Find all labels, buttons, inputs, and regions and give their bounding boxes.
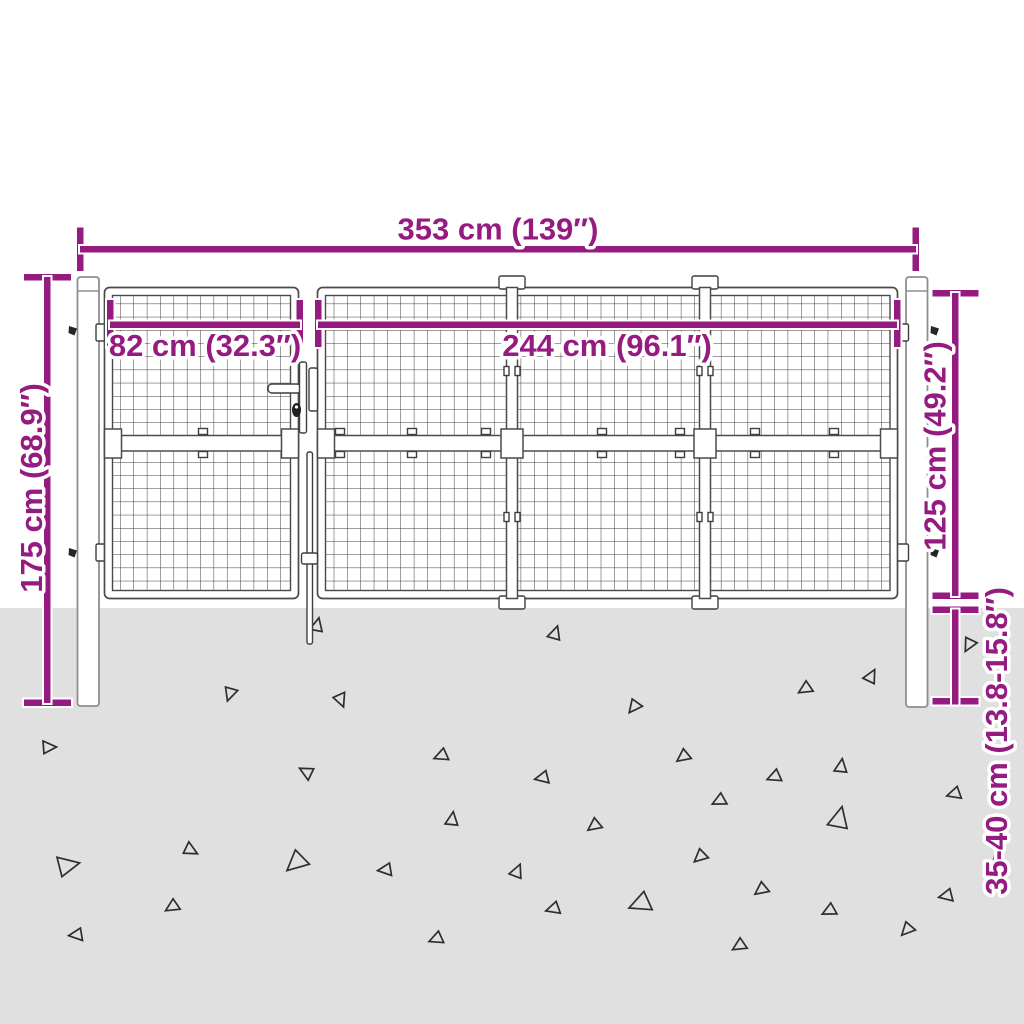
latch-plate <box>300 362 307 433</box>
dimension-total-width: 353 cm (139″) <box>77 212 919 272</box>
dim-line <box>952 293 959 596</box>
dim-label-side-gate-width: 82 cm (32.3″) <box>109 328 301 363</box>
hinge-pin-icon <box>931 326 940 336</box>
rail-clamp <box>105 429 122 458</box>
drop-rod <box>307 452 313 644</box>
lock-cylinder-icon <box>292 403 301 417</box>
dim-line <box>80 246 916 253</box>
gate-handle <box>268 384 301 393</box>
ground-soil <box>0 608 1024 1024</box>
rail-clamp <box>881 429 898 458</box>
dim-label-post-height: 175 cm (68.9″) <box>14 383 49 593</box>
gate-dimension-diagram: 353 cm (139″) 82 cm (32.3″) 244 cm (96.1… <box>0 0 1024 1024</box>
main-gate-mid-rail <box>318 436 898 452</box>
rail-clamp <box>694 429 716 458</box>
hinge-pin-icon <box>69 548 78 558</box>
dim-line <box>952 610 959 705</box>
dim-label-total-width: 353 cm (139″) <box>398 212 599 247</box>
rail-clamp <box>501 429 523 458</box>
side-gate-mid-rail <box>105 436 299 452</box>
drop-rod-handle <box>302 553 318 564</box>
dim-label-mesh-height: 125 cm (49.2″) <box>917 341 952 551</box>
rail-clamp <box>318 429 335 458</box>
product-diagram-canvas: 353 cm (139″) 82 cm (32.3″) 244 cm (96.1… <box>0 0 1024 1024</box>
left-post <box>78 277 100 706</box>
lock-case <box>309 368 318 411</box>
hinge-pin-icon <box>69 326 78 336</box>
keyhole-icon <box>295 405 298 408</box>
dim-label-underground-depth: 35-40 cm (13.8-15.8″) <box>979 587 1014 895</box>
dim-label-main-gate-width: 244 cm (96.1″) <box>502 328 712 363</box>
rail-clamp <box>282 429 299 458</box>
